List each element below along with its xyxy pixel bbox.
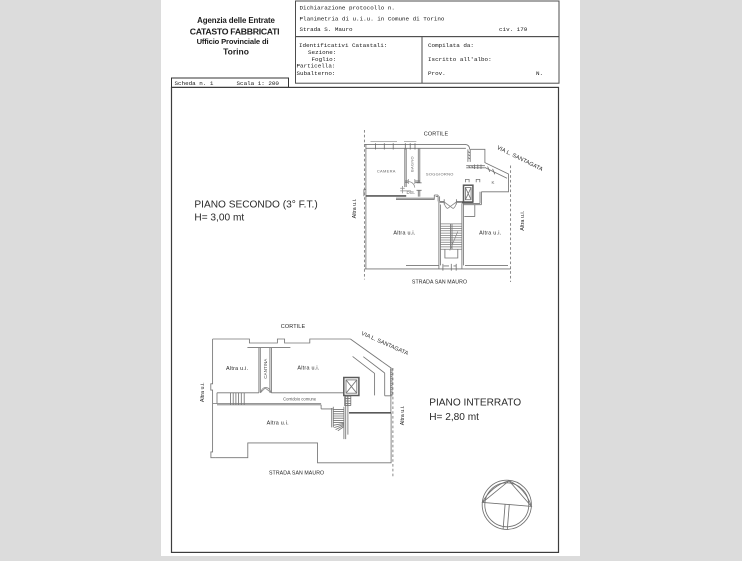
svg-text:CORTILE: CORTILE	[281, 324, 306, 330]
svg-text:Scala 1: 200: Scala 1: 200	[237, 80, 280, 87]
svg-text:K: K	[492, 180, 495, 185]
svg-text:Dichiarazione protocollo n.: Dichiarazione protocollo n.	[300, 4, 395, 11]
svg-text:H= 3,00 mt: H= 3,00 mt	[194, 213, 244, 224]
svg-text:Altra u.i.: Altra u.i.	[520, 211, 526, 231]
svg-text:Altra u.i.: Altra u.i.	[393, 231, 415, 237]
svg-text:STRADA SAN MAURO: STRADA SAN MAURO	[412, 280, 467, 286]
svg-text:Subalterno:: Subalterno:	[297, 70, 336, 77]
svg-text:Altra u.i.: Altra u.i.	[226, 366, 248, 372]
svg-text:Compilata da:: Compilata da:	[428, 42, 474, 49]
svg-text:Planimetria di u.i.u. in Comun: Planimetria di u.i.u. in Comune di Torin…	[300, 15, 445, 22]
svg-text:Corridoio comune: Corridoio comune	[283, 396, 317, 401]
svg-text:PIANO SECONDO (3° F.T.): PIANO SECONDO (3° F.T.)	[194, 199, 317, 210]
svg-text:Iscritto all'albo:: Iscritto all'albo:	[428, 56, 492, 63]
svg-text:SOGGIORNO: SOGGIORNO	[426, 171, 454, 176]
svg-text:CAMERA: CAMERA	[377, 169, 396, 174]
svg-text:Altra u.i.: Altra u.i.	[200, 382, 206, 402]
svg-text:Agenzia delle Entrate: Agenzia delle Entrate	[197, 16, 275, 25]
svg-text:Prov.: Prov.	[428, 70, 446, 77]
svg-text:Torino: Torino	[223, 47, 249, 57]
svg-text:DIS.: DIS.	[407, 190, 416, 195]
svg-text:civ. 179: civ. 179	[499, 26, 528, 33]
svg-text:Scheda n. 1: Scheda n. 1	[175, 80, 214, 87]
svg-text:STRADA SAN MAURO: STRADA SAN MAURO	[269, 471, 324, 477]
svg-text:H= 2,80 mt: H= 2,80 mt	[429, 412, 479, 423]
svg-text:Altra u.i.: Altra u.i.	[297, 366, 319, 372]
svg-text:CANTINA: CANTINA	[263, 358, 268, 379]
svg-text:Ufficio Provinciale di: Ufficio Provinciale di	[197, 37, 269, 46]
svg-text:Altra u.i.: Altra u.i.	[400, 406, 406, 426]
svg-text:Altra u.i.: Altra u.i.	[267, 421, 289, 427]
svg-text:CATASTO FABBRICATI: CATASTO FABBRICATI	[190, 26, 280, 36]
svg-text:N.: N.	[536, 70, 543, 77]
svg-text:Altra u.i.: Altra u.i.	[479, 231, 501, 237]
svg-text:PIANO INTERRATO: PIANO INTERRATO	[429, 398, 521, 409]
svg-text:CORTILE: CORTILE	[424, 131, 449, 137]
svg-text:Altra u.i.: Altra u.i.	[352, 199, 358, 219]
svg-text:Particella:: Particella:	[297, 63, 336, 70]
svg-text:Strada S. Mauro: Strada S. Mauro	[300, 26, 353, 33]
svg-text:Identificativi Catastali:: Identificativi Catastali:	[299, 42, 387, 49]
svg-text:BAGNO: BAGNO	[409, 156, 414, 172]
